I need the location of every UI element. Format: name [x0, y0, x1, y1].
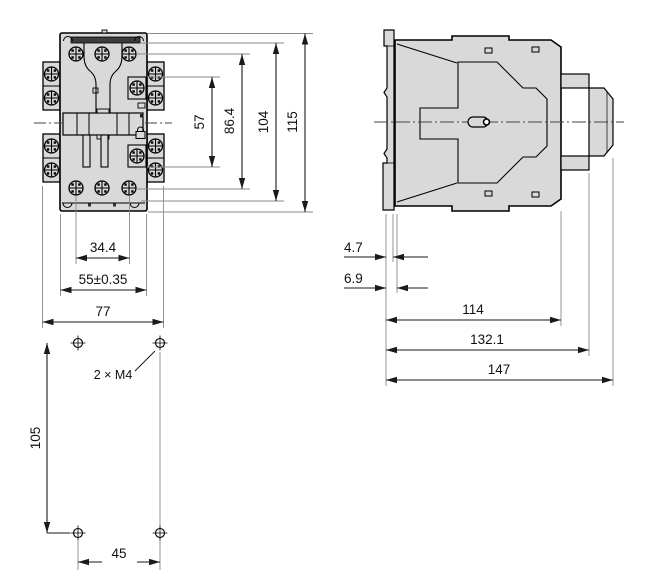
- top-tab: [102, 30, 107, 33]
- dim-label-55: 55±0.35: [79, 272, 128, 287]
- dimension-86-4: 86.4: [222, 54, 245, 189]
- dimension-45: 45: [78, 546, 160, 565]
- dimension-147: 147: [386, 362, 613, 383]
- dim-label-132-1: 132.1: [470, 332, 504, 347]
- mounting-hole-icon: [71, 336, 86, 351]
- dim-label-86-4: 86.4: [222, 107, 237, 134]
- front-view: 57 86.4 104 115 34.4 55±0.35: [34, 30, 313, 328]
- dim-label-57: 57: [192, 114, 207, 129]
- screw-icon: [122, 181, 136, 195]
- drawing-canvas: 57 86.4 104 115 34.4 55±0.35: [0, 0, 667, 580]
- drill-plan: 2 × M4 105 45: [28, 336, 168, 571]
- din-rail-clip: [383, 30, 394, 210]
- dimension-55: 55±0.35: [61, 272, 147, 293]
- screw-icon: [69, 47, 83, 61]
- mounting-hole-icon: [153, 526, 168, 541]
- screw-icon: [130, 149, 144, 163]
- dim-label-104: 104: [256, 110, 271, 133]
- mounting-hole-icon: [71, 526, 86, 541]
- top-bar: [71, 37, 140, 43]
- hole-callout-label: 2 × M4: [94, 368, 133, 382]
- dimension-104: 104: [256, 43, 279, 201]
- dim-label-77: 77: [95, 304, 110, 319]
- mounting-hole-icon: [153, 336, 168, 351]
- screw-icon: [45, 67, 59, 81]
- screw-icon: [69, 181, 83, 195]
- dim-label-147: 147: [488, 362, 511, 377]
- hole-callout: 2 × M4: [94, 351, 155, 382]
- indicator-dot: [140, 114, 144, 118]
- screw-icon: [45, 139, 59, 153]
- dimension-34-4: 34.4: [76, 240, 130, 261]
- dim-label-105: 105: [28, 427, 43, 450]
- dimension-57: 57: [192, 77, 215, 167]
- left-leg: [83, 135, 90, 167]
- screw-icon: [149, 67, 163, 81]
- dimension-drawing: 57 86.4 104 115 34.4 55±0.35: [0, 0, 667, 580]
- side-view: 4.7 6.9 114 132.1 147: [344, 30, 624, 386]
- screw-icon: [149, 139, 163, 153]
- drill-plan-extension-lines: [78, 352, 160, 570]
- dimension-105: 105: [28, 343, 70, 533]
- screw-icon: [149, 163, 163, 177]
- screw-icon: [149, 91, 163, 105]
- dim-label-45: 45: [111, 546, 126, 561]
- right-leg: [101, 135, 108, 167]
- dim-label-6-9: 6.9: [344, 271, 363, 286]
- screw-icon: [95, 181, 109, 195]
- dim-label-114: 114: [462, 302, 484, 317]
- dimension-132-1: 132.1: [386, 332, 589, 353]
- shaft-slot: [468, 117, 490, 127]
- dim-label-34-4: 34.4: [90, 240, 117, 255]
- screw-icon: [45, 91, 59, 105]
- screw-icon: [130, 81, 144, 95]
- dim-label-4-7: 4.7: [344, 240, 363, 255]
- screw-icon: [45, 163, 59, 177]
- dimension-115: 115: [285, 34, 308, 213]
- dimension-77: 77: [43, 304, 164, 325]
- dimension-114: 114: [386, 302, 561, 323]
- screw-icon: [95, 47, 109, 61]
- dim-label-115: 115: [285, 111, 300, 133]
- screw-icon: [122, 47, 136, 61]
